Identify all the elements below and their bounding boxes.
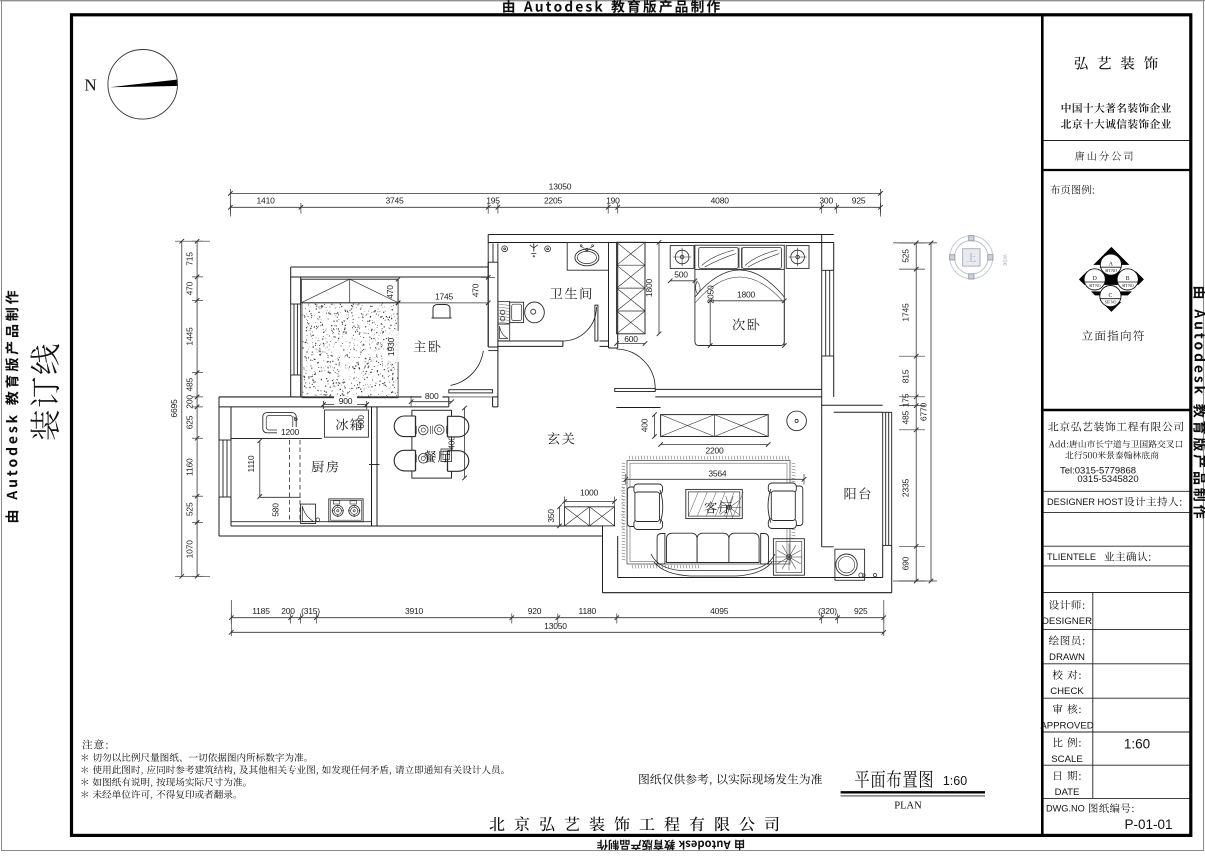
svg-text:6770: 6770 (919, 402, 929, 421)
svg-text:DESIGNER HOST: DESIGNER HOST (1047, 497, 1123, 507)
svg-text:350: 350 (546, 509, 556, 523)
svg-text:200: 200 (281, 606, 295, 616)
svg-text:485: 485 (185, 377, 195, 391)
svg-text:800: 800 (425, 391, 439, 401)
svg-text:1930: 1930 (386, 337, 396, 356)
svg-text:200: 200 (185, 395, 195, 409)
svg-text:3564: 3564 (708, 468, 727, 478)
svg-text:1445: 1445 (185, 327, 195, 346)
svg-text:B: B (1126, 276, 1130, 282)
svg-text:715: 715 (185, 252, 195, 266)
svg-text:2200: 2200 (705, 446, 724, 456)
svg-text:2205: 2205 (544, 196, 563, 206)
svg-text:525: 525 (901, 249, 911, 263)
svg-text:6695: 6695 (169, 399, 179, 418)
svg-text:470: 470 (470, 283, 480, 297)
svg-text:4080: 4080 (711, 196, 730, 206)
svg-text:APPROVED: APPROVED (1040, 720, 1093, 731)
svg-text:690: 690 (901, 556, 911, 570)
svg-text:1:60: 1:60 (1124, 737, 1150, 752)
svg-text:400: 400 (640, 418, 650, 432)
svg-text:2050: 2050 (706, 285, 716, 304)
svg-text:3910: 3910 (405, 606, 424, 616)
svg-text:195: 195 (486, 196, 500, 206)
svg-text:1745: 1745 (901, 303, 911, 322)
svg-text:600: 600 (624, 334, 638, 344)
svg-text:300: 300 (819, 196, 833, 206)
svg-text:1185: 1185 (252, 606, 270, 616)
svg-text:13050: 13050 (544, 621, 567, 631)
svg-text:CHECK: CHECK (1050, 686, 1084, 697)
svg-text:SIT NO: SIT NO (1105, 268, 1117, 273)
svg-text:2335: 2335 (901, 478, 911, 497)
svg-text:0315-5345820: 0315-5345820 (1077, 474, 1138, 485)
svg-text:920: 920 (528, 606, 542, 616)
svg-text:SIT NO: SIT NO (1105, 300, 1117, 305)
svg-text:1200: 1200 (281, 427, 300, 437)
svg-text:SIT NO: SIT NO (1122, 283, 1134, 288)
svg-text:DATE: DATE (1055, 787, 1080, 798)
svg-text:1800: 1800 (737, 290, 756, 300)
svg-text:175: 175 (901, 393, 911, 407)
svg-text:400: 400 (447, 436, 457, 450)
svg-text:470: 470 (185, 281, 195, 295)
svg-text:625: 625 (185, 415, 195, 429)
svg-text:SCALE: SCALE (1051, 754, 1082, 765)
svg-text:DESIGNER: DESIGNER (1042, 616, 1092, 627)
svg-text:580: 580 (271, 503, 281, 517)
svg-text:P-01-01: P-01-01 (1124, 817, 1172, 832)
svg-text:D: D (1093, 276, 1097, 282)
svg-text:600: 600 (356, 415, 366, 429)
svg-text:470: 470 (385, 285, 395, 299)
svg-text:(320): (320) (818, 606, 837, 616)
svg-text:925: 925 (854, 606, 868, 616)
svg-text:1160: 1160 (185, 458, 195, 476)
svg-text:TLIENTELE: TLIENTELE (1047, 552, 1096, 562)
svg-text:1000: 1000 (580, 488, 599, 498)
svg-text:1:60: 1:60 (943, 774, 967, 788)
svg-text:3745: 3745 (385, 196, 404, 206)
svg-text:C: C (1108, 293, 1112, 299)
svg-text:1180: 1180 (579, 606, 597, 616)
svg-text:W06: W06 (1001, 254, 1007, 265)
svg-text:DRAWN: DRAWN (1049, 652, 1085, 663)
svg-text:525: 525 (185, 502, 195, 516)
svg-text:4095: 4095 (710, 606, 729, 616)
svg-text:485: 485 (901, 410, 911, 424)
svg-text:815: 815 (901, 369, 911, 383)
svg-text:1070: 1070 (185, 540, 195, 559)
svg-text:190: 190 (606, 196, 620, 206)
svg-text:1410: 1410 (257, 196, 276, 206)
svg-text:(315): (315) (301, 606, 320, 616)
svg-text:900: 900 (339, 396, 353, 406)
svg-text:PLAN: PLAN (894, 801, 922, 812)
svg-text:925: 925 (852, 196, 866, 206)
svg-text:500: 500 (674, 270, 688, 280)
svg-text:DWG.NO: DWG.NO (1046, 804, 1085, 814)
svg-text:13050: 13050 (549, 181, 572, 191)
svg-text:1745: 1745 (435, 291, 454, 301)
svg-text:1800: 1800 (644, 278, 654, 297)
svg-text:SIT NO: SIT NO (1089, 283, 1101, 288)
svg-text:N: N (84, 76, 96, 95)
svg-text:1110: 1110 (246, 455, 256, 472)
